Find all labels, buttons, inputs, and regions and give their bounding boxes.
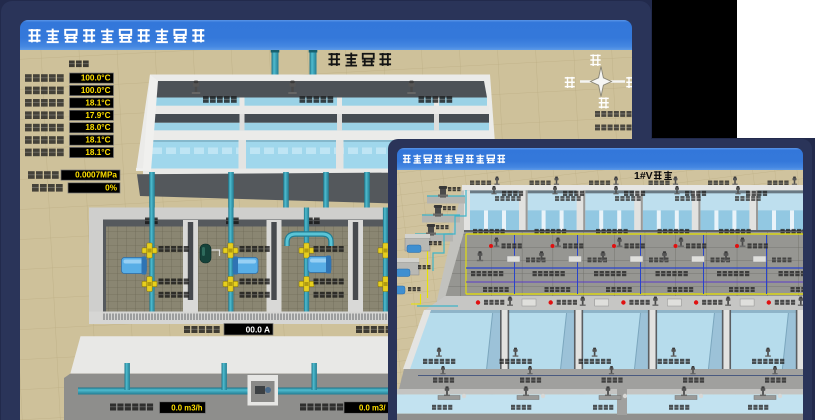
svg-text:18.1°C: 18.1°C bbox=[85, 136, 110, 145]
svg-text:18.1°C: 18.1°C bbox=[85, 98, 110, 107]
svg-text:18.1°C: 18.1°C bbox=[85, 148, 110, 157]
svg-text:100.0°C: 100.0°C bbox=[81, 86, 111, 95]
svg-text:0.0 m3/: 0.0 m3/ bbox=[359, 404, 386, 413]
svg-text:1#V: 1#V bbox=[634, 170, 653, 182]
svg-text:18.0°C: 18.0°C bbox=[85, 123, 110, 132]
svg-text:00.0 A: 00.0 A bbox=[246, 324, 270, 334]
svg-text:17.9°C: 17.9°C bbox=[85, 111, 110, 120]
svg-text:0.0007MPa: 0.0007MPa bbox=[75, 171, 117, 180]
svg-text:0.0 m3/h: 0.0 m3/h bbox=[171, 404, 202, 413]
svg-text:0%: 0% bbox=[105, 183, 118, 192]
svg-text:100.0°C: 100.0°C bbox=[81, 74, 111, 83]
